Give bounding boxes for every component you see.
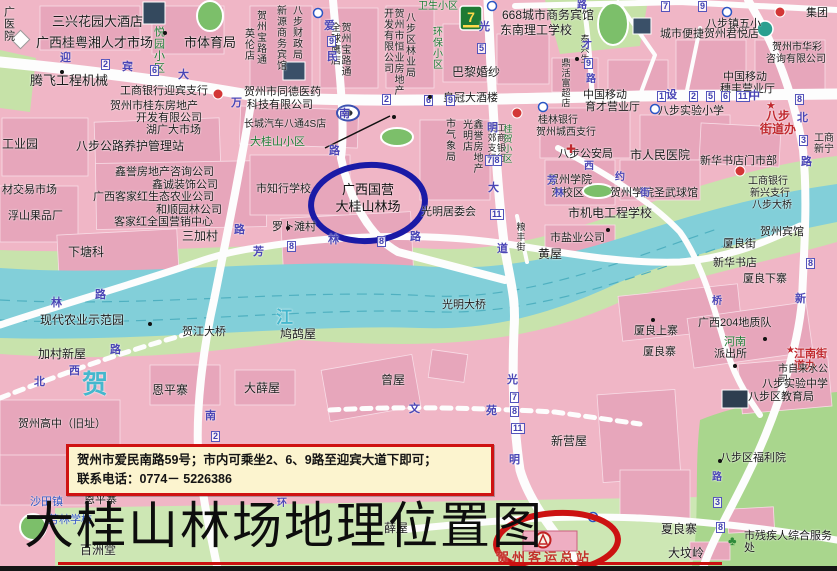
road-name-char: 街 xyxy=(640,188,650,199)
map-label: 夏良寨 xyxy=(661,523,697,536)
map-label: 贺州市华彩 xyxy=(772,42,822,53)
road-name-char: 路 xyxy=(801,156,812,168)
map-label: 下塘科 xyxy=(68,246,104,259)
map-label: 曾屋 xyxy=(381,374,405,387)
map-label: 贺州宝路通 xyxy=(254,10,265,65)
map-label: 粮丰街 xyxy=(515,222,524,252)
bus-number-badge: 2 xyxy=(101,59,110,70)
map-label: 集团 xyxy=(806,7,828,19)
forest-farm-label: 广西国营 大桂山林场 xyxy=(316,182,420,216)
road-name-char: 北 xyxy=(34,376,45,388)
map-label: 市盐业公司 xyxy=(550,232,605,244)
poi-dot xyxy=(392,115,396,119)
map-label: 江 xyxy=(276,308,293,327)
road-name-char: 道 xyxy=(497,243,508,255)
map-label: 材交易市场 xyxy=(2,184,57,196)
poi-dot xyxy=(286,226,290,230)
bus-number-badge: 3 xyxy=(713,497,722,508)
bus-number-badge: 6 xyxy=(150,65,159,76)
map-label: 浮山果品厂 xyxy=(8,210,63,222)
bus-number-badge: 9 xyxy=(327,36,336,47)
map-label: 长城汽车八通4S店 xyxy=(244,119,326,130)
map-label: ★ xyxy=(766,100,776,112)
map-label: ★ xyxy=(786,345,795,356)
poi-dot xyxy=(60,70,64,74)
map-label: 市残疾人综合服务处 xyxy=(744,530,837,555)
map-label: 市气象局 xyxy=(443,118,454,162)
road-name-char: 林 xyxy=(328,234,339,246)
road-name-char: 明 xyxy=(487,122,498,134)
road-name-char: 新 xyxy=(795,293,806,305)
map-label: 新营屋 xyxy=(551,435,587,448)
road-name-char: 芳 xyxy=(253,246,264,258)
map-label: 贺州市同德医药 xyxy=(244,86,321,98)
road-name-char: 路 xyxy=(329,145,340,157)
road-name-char: 西 xyxy=(69,365,80,377)
map-label: 贺州学院圣武球馆 xyxy=(610,187,698,199)
map-label: 光明大桥 xyxy=(442,299,486,311)
bus-number-badge: 2 xyxy=(382,94,391,105)
map-label: 工商银行迎宾支行 xyxy=(120,85,208,97)
road-name-char: 文 xyxy=(409,403,420,415)
road-name-char: 大 xyxy=(488,182,499,194)
road-name-char: 大 xyxy=(178,69,189,81)
building-photo-icon xyxy=(633,18,651,34)
map-label: 恩平寨 xyxy=(152,384,188,397)
map-label: 鑫诚装饰公司 xyxy=(152,179,218,191)
map-label: 贺州市恒业房地产 开发有限公司 xyxy=(381,8,402,96)
bus-number-badge: 8 xyxy=(287,241,296,252)
map-label: 东南理工学校 xyxy=(500,24,572,37)
map-label: 贺州宾馆 xyxy=(760,226,804,238)
map-label: 贺江大桥 xyxy=(182,326,226,338)
map-label: 三兴花园大酒店 xyxy=(52,15,143,30)
map-label: 八步公路养护管理站 xyxy=(76,140,184,153)
road-name-char: 光 xyxy=(507,374,518,386)
map-label: 英伦店 xyxy=(242,28,253,61)
poi-dot xyxy=(651,318,655,322)
road-name-char: 西 xyxy=(584,161,594,172)
map-label: 工商银行 xyxy=(748,176,788,187)
map-label: 黄屋 xyxy=(538,248,562,261)
map-label: 育才营业厅 xyxy=(585,101,640,113)
bus-number-badge: 8 xyxy=(795,94,804,105)
road-name-char: 设 xyxy=(666,89,677,101)
map-label: 广西客家红生态农业公司 xyxy=(93,191,214,203)
map-label: 贺州市桂东房地产 xyxy=(110,100,198,112)
bus-number-badge: 8 xyxy=(377,236,386,247)
road-name-char: 约 xyxy=(615,172,625,183)
map-label: 大坟岭 xyxy=(668,547,704,560)
bus-number-badge: 9 xyxy=(698,1,707,12)
bus-number-badge: 11 xyxy=(511,423,525,434)
bus-number-badge: 8 xyxy=(716,522,725,533)
map-label: 新兴支行 xyxy=(750,188,790,199)
map-label: 开发有限公司 xyxy=(136,112,202,124)
poi-dot xyxy=(763,337,767,341)
poi-dot xyxy=(606,228,610,232)
building-photo-icon xyxy=(722,390,748,408)
building-photo-icon xyxy=(283,62,305,80)
map-screenshot: 7 ♣ 广医院三兴花园大酒店广西桂粤湘人才市场市体育局腾飞工程机械工商银行迎宾支… xyxy=(0,0,837,571)
map-label: 咨询有限公司 xyxy=(766,54,826,65)
bus-number-badge: 8 xyxy=(510,406,519,417)
poi-dot xyxy=(428,95,432,99)
map-label: 八步区林业局 xyxy=(403,12,414,78)
map-label: 贺州高中（旧址） xyxy=(18,418,106,430)
map-label: 厦良街 xyxy=(723,238,756,250)
road-name-char: 爱 xyxy=(324,20,335,32)
map-label: 新源商务宾馆 xyxy=(274,5,285,71)
road-name-char: 明 xyxy=(509,454,520,466)
map-label: 桂林银行 xyxy=(538,115,578,126)
map-label: 和顺园林公司 xyxy=(156,204,222,216)
map-label: 厦良下寨 xyxy=(743,273,787,285)
map-label: 派出所 xyxy=(714,348,747,360)
map-label: 客家红全国营销中心 xyxy=(114,216,213,228)
stadium-oval xyxy=(381,128,413,146)
map-label: 八步镇五小 xyxy=(706,18,761,30)
bus-number-badge: 7 xyxy=(510,392,519,403)
poi-dot xyxy=(718,459,722,463)
map-label: 八步财政局 xyxy=(290,5,301,60)
bottom-black-strip xyxy=(0,566,837,571)
bus-number-badge: 2 xyxy=(689,91,698,102)
map-label: 三加村 xyxy=(182,230,218,243)
map-label: 广西桂粤湘人才市场 xyxy=(36,36,153,51)
map-label: 广医院 xyxy=(2,6,14,42)
bottom-red-line xyxy=(58,562,722,565)
bus-number-badge: 5 xyxy=(477,43,486,54)
road-name-char: 林 xyxy=(51,297,62,309)
bus-number-badge: 9 xyxy=(446,95,455,106)
map-label: 八步区福利院 xyxy=(720,452,786,464)
road-name-char: 路 xyxy=(95,289,106,301)
city-block xyxy=(620,470,690,520)
map-label: 光明居委会 xyxy=(421,206,476,218)
poi-dot xyxy=(148,322,152,326)
bus-number-badge: 2 xyxy=(211,431,220,442)
map-label: 中国移动 xyxy=(583,89,627,101)
road-name-char: 迎 xyxy=(60,52,71,64)
forest-farm-label-line1: 广西国营 xyxy=(316,182,420,199)
bus-number-badge: 7 xyxy=(661,1,670,12)
map-label: 大桂山小区 xyxy=(250,136,305,148)
map-label: 工业园 xyxy=(2,138,38,151)
map-title-caption: 大桂山林场地理位置图 xyxy=(24,486,544,558)
bus-number-badge: 11 xyxy=(490,209,504,220)
map-label: 环保小区 xyxy=(430,26,441,70)
road-name-char: 南 xyxy=(339,108,350,120)
map-label: 加村新屋 xyxy=(38,348,86,361)
poi-dot xyxy=(163,31,167,35)
map-label: 市知行学校 xyxy=(256,183,311,195)
map-label: 市机电工程学校 xyxy=(568,207,652,220)
road-name-char: 路 xyxy=(577,0,587,11)
map-label: 鑫誉房地产 光明店 xyxy=(460,119,481,174)
map-label: 贺 xyxy=(82,370,108,399)
city-block xyxy=(597,389,681,482)
map-label: 八步区教育局 xyxy=(748,391,814,403)
map-label: 市体育局 xyxy=(184,36,236,51)
road-name-char: 南 xyxy=(205,410,216,422)
road-name-char: 路 xyxy=(712,472,722,483)
road-name-char: 路 xyxy=(586,74,596,85)
road-name-char: 林 xyxy=(554,188,564,199)
disabled-center-tree-icon: ♣ xyxy=(728,533,737,548)
map-label: 市人民医院 xyxy=(630,149,690,162)
bus-number-badge: 9 xyxy=(584,58,593,69)
map-label: 卫生小区 xyxy=(418,1,458,12)
poi-dot xyxy=(575,57,579,61)
city-block xyxy=(608,60,668,92)
road-name-char: 宾 xyxy=(122,61,133,73)
map-label: 新华书店门市部 xyxy=(700,155,777,167)
map-label: 桂贺小区 xyxy=(502,124,511,164)
map-label: 鼎活富超店 xyxy=(560,58,569,108)
road-name-char: 路 xyxy=(234,224,245,236)
map-label: 厦良上寨 xyxy=(634,325,678,337)
road-name-char: 路 xyxy=(410,231,421,243)
road-name-char: 北 xyxy=(797,112,808,124)
map-label: 厦良寨 xyxy=(643,346,676,358)
bus-number-badge: 3 xyxy=(799,135,808,146)
map-label: 湖广大市场 xyxy=(146,124,201,136)
stadium-oval xyxy=(598,3,628,45)
poi-dot xyxy=(733,364,737,368)
map-label: 鑫誉房地产咨询公司 xyxy=(115,166,214,178)
hotel-photo-icon xyxy=(143,2,165,24)
map-label: 河南 xyxy=(724,336,746,348)
map-label: 巴黎婚纱 xyxy=(452,66,500,79)
bus-number-badge: 11 xyxy=(736,91,750,102)
road-name-char: 万 xyxy=(231,97,242,109)
forest-farm-label-line2: 大桂山林场 xyxy=(316,199,420,216)
map-label: 八步实验小学 xyxy=(658,105,724,117)
bus-number-badge: 5 xyxy=(706,91,715,102)
map-label: 科技有限公司 xyxy=(247,99,313,111)
city-block xyxy=(497,34,549,84)
road-name-char: 桥 xyxy=(712,296,722,307)
map-label: 中国移动 xyxy=(723,71,767,83)
map-label: 罗卜滩村 xyxy=(272,221,316,233)
map-label: 新华书店 xyxy=(713,257,757,269)
road-name-char: 路 xyxy=(110,344,121,356)
road-name-char: 中 xyxy=(749,90,760,102)
stadium-oval xyxy=(197,1,223,31)
road-name-char: 苑 xyxy=(486,405,497,417)
road-name-char: 芳 xyxy=(547,176,557,187)
map-label: 八步大桥 xyxy=(752,200,792,211)
bus-number-badge: 1 xyxy=(657,91,666,102)
map-label: 大薛屋 xyxy=(244,382,280,395)
road-name-char: 光 xyxy=(479,21,490,33)
bus-number-badge: 7|8 xyxy=(485,155,502,166)
road-name-char: 才 xyxy=(582,40,592,51)
map-label: 腾飞工程机械 xyxy=(30,74,108,89)
address-line: 贺州市爱民南路59号；市内可乘坐2、6、9路至迎宾大道下即可； xyxy=(77,451,483,470)
map-label: 鸠鸪屋 xyxy=(280,328,316,341)
map-label: 贺州城西支行 xyxy=(536,127,596,138)
map-label: 广西204地质队 xyxy=(698,317,771,329)
map-label: 工商 新宁 xyxy=(814,133,834,155)
bus-number-badge: 6 xyxy=(721,91,730,102)
road-name-char: 民 xyxy=(327,51,338,63)
map-label: ✚ xyxy=(566,143,576,156)
map-label: 八步 街道办 xyxy=(760,110,796,137)
svg-text:7: 7 xyxy=(467,9,475,25)
city-block xyxy=(428,350,468,383)
map-label: 八步实验中学 xyxy=(762,378,828,390)
bus-number-badge: 8 xyxy=(806,258,815,269)
map-label: 现代农业示范园 xyxy=(40,314,124,327)
